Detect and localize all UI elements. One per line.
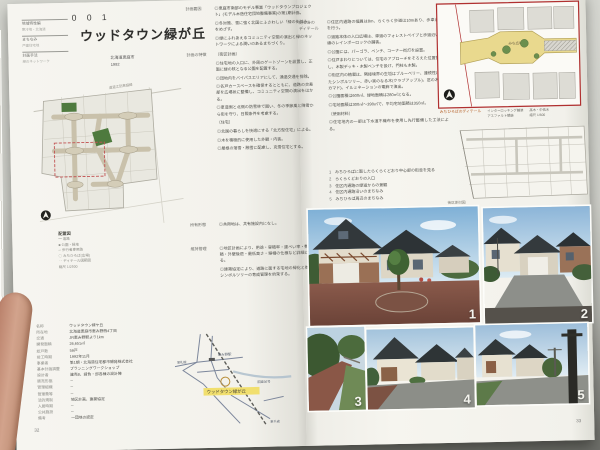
index-tab: 地域特性編 寒冷地・北海道 [22,19,68,32]
legend-paving-2: アスファルト舗装 [487,113,523,119]
bullet-item: ◎宅地面積は300㎡〜390㎡で、平均宅地面積は350㎡。 [329,100,449,109]
open-book-spread: 地域特性編 寒冷地・北海道 まちなみ 戸建住宅地 計画手法 緑のネットワーク 0… [7,0,594,450]
detail-plan-legend-col1: インターロッキング舗装 アスファルト舗装 [487,108,523,119]
section-label-line2: ディテール [299,25,325,32]
detail-plan-drawing: みち広場 [435,0,581,109]
index-tab: 計画手法 緑のネットワーク [22,51,68,64]
route-label: 国道36号 [257,379,270,384]
project-location: 北海道恵庭市 [110,54,134,61]
photo-4-image [366,327,475,409]
block-layout-drawing [442,124,590,201]
site-plan-caption-block: 配置図 ━ 道路■ 公園・緑地─ 歩行者専用路◯ みちひろば(広場)╌ ディテー… [58,229,149,270]
photo-of-book: 地域特性編 寒冷地・北海道 まちなみ 戸建住宅地 計画手法 緑のネットワーク 0… [0,0,600,450]
project-number: 0 0 1 [72,12,111,23]
bullet-item: 〔住宅〕 [217,118,314,126]
index-tab-subheading: 緑のネットワーク [23,58,69,64]
bullet-item: ◎住宅地の入口に、外周のゲートゾーンを設置し、正面に緑の核となる公園を配置する。 [216,58,313,72]
photo-4: 4 [366,327,475,409]
index-tab: まちなみ 戸建住宅地 [22,35,68,48]
bullet-item: ◎共用地は、共有施設内になし。 [219,220,316,228]
park-area [61,103,76,112]
bullet-item: ◎住戸まわりについては、住宅のアプローチをそろえた位置割りとし、木製デッキ・木製… [328,55,448,70]
section-label: 維持管理 [190,246,218,282]
photo-number: 4 [463,391,471,406]
bullet-item: ◎各戸カースペースを確保するとともに、道路の交差部を広場状に整備し、コミュニティ… [216,82,313,103]
photo-1: 1 [308,206,480,326]
index-tab-subheading: 寒冷地・北海道 [22,26,68,32]
section-items: ◎住区内通路の幅員は8m、らくらく歩道は10mあり、歩車道分離を行う。◎道路本体… [327,17,449,135]
to-chitose-label: 至千歳 [270,418,280,423]
detail-plan-figure: みち広場 [435,0,581,109]
index-tab-subheading: 戸建住宅地 [22,42,68,48]
section-label: 計画の特徴 [186,52,215,155]
bullet-item: ◎屋根の落雪・融雪に配慮し、克雪住宅とする。 [217,144,314,152]
photo-5: 5 [475,323,589,405]
photo-3: 3 [307,327,366,411]
section-maintenance: 維持管理 ◎地区計画により、用途・容積率・建ぺい率・敷地面積・外壁後退・最低高さ… [190,244,317,283]
bullet-item: ◎住区内通路の幅員は8m、らくらく歩道は10mあり、歩車道分離を行う。 [327,17,447,32]
bullet-item: ◎北国の暮らしを快適にする「北方型住宅」による。 [217,127,314,135]
block-layout-caption: 街区割付図 [448,201,466,206]
photo-number: 2 [581,306,589,321]
bullet-item: ◎街区内の植栽は、隣接境界の生垣はブルーベリー、連続性に優れたシンボルツリー、赤… [328,70,448,91]
bullet-item: ◎木を積極的に使用した外観・内装。 [217,135,314,143]
section-plan-features: 計画の特徴 〔街区計画〕◎住宅地の入口に、外周のゲートゾーンを設置し、正面に緑の… [186,50,314,156]
spec-label: 備考 [38,415,68,422]
bullet-item: ◎公園には、パーゴラ、ベンチ、コーナー街灯を設置。 [327,47,447,56]
bullet-item: 〔街区計画〕 [215,50,312,58]
bullet-item: ◎緑にふれあえるコミュニティ空間の演出と緑のネットワークによる潤いのあるまちづく… [215,33,312,47]
photo-2: 2 [483,206,592,324]
detail-plan-legend-col2: 高木・中低木 縮尺 1/600 [529,108,549,118]
legend-scale: 縮尺 1/600 [529,113,549,118]
bullet-item: ◎住宅地内の一部は下水道不織布を使用し先行整備した工法による。 [329,117,449,132]
photo-caption-number: 5 [329,197,333,204]
location-map-drawing: 恵み野駅 至札幌 至千歳 国道36号 ウッドタウン緑が丘 [172,330,294,428]
photo-5-image [475,323,589,405]
bullet-item: ◎団地内をバイパスエリアにして、通過交通を排除。 [216,73,313,81]
bullet-item: ◎建築協定により、道路に面する宅地の緑化と街路のシンボルツリーの育成管理を約束す… [220,265,317,279]
to-sapporo-label: 至札幌 [177,359,187,364]
photo-caption-list: 1 みちひろばに面したらくらくどおり中心部の街並を見る 2 らくらくどおりの入口… [329,167,452,204]
section-label: 所有形態 [190,222,217,231]
section-items: ◎地区計画により、用途・容積率・建ぺい率・敷地面積・外壁後退・最低高さ・塀柵の仕… [219,244,317,282]
photo-1-image [308,206,480,326]
bullet-item: ◎道路本体の入口広場は、車道のフォレストペイブと歩道沿い一直線のレインボーロック… [327,32,447,47]
photo-caption-text: みちひろば周辺のまちなみ [335,195,383,203]
site-plan-drawing: 道道江別恵庭線 [31,78,186,227]
road-name-label: 道道江別恵庭線 [109,82,134,90]
section-items: ◎恵庭市南部のモデル事業「ウッドタウンプロジェクト」(モデル木造住宅団地整備事業… [214,4,312,51]
bullet-item: ◎冬対策、雪に強く北国にふさわしい「緑の街並み」をめざす。 [215,19,312,33]
spec-table: 名称 ウッドタウン緑ケ丘 所在地 北海道恵庭市恵み野西4丁目 交通 JR恵み野駅… [36,320,188,421]
detail-plan-caption: みちひろばのディテール [440,109,482,120]
photo-number: 3 [354,394,362,409]
bullet-item: ◎恵庭市南部のモデル事業「ウッドタウンプロジェクト」(モデル木造住宅団地整備事業… [214,4,311,18]
photo-number: 5 [577,387,585,402]
section-label: 計画要因 [185,6,213,51]
location-map-figure: 恵み野駅 至札幌 至千歳 国道36号 ウッドタウン緑が丘 [172,330,294,428]
project-year: 1992 [111,62,120,67]
north-arrow-icon [41,210,51,220]
photo-number: 1 [469,306,477,321]
site-plan-figure: 道道江別恵庭線 [31,78,186,227]
page-number-right: 33 [576,418,581,423]
bullet-item: ◎車道側と北側の防雪林で囲い、冬の季節風と降雪から街を守り、日照条件を考慮する。 [217,103,314,117]
index-tabs: 地域特性編 寒冷地・北海道 まちなみ 戸建住宅地 計画手法 緑のネットワーク [22,15,69,64]
page-number-left: 32 [34,428,39,433]
bullet-item: 〔使用材料〕 [329,109,449,118]
section-label-wrap: 街なみの ディテール [299,19,327,135]
bullet-item: ◎公園面積は600㎡、緑地面積は280㎡となる。 [328,91,448,100]
station-label: 恵み野駅 [218,351,232,356]
block-layout-figure [442,124,590,201]
site-plan-legend: ━ 道路■ 公園・緑地─ 歩行者専用路◯ みちひろば(広場)╌ ディテール図範囲… [58,235,149,270]
photo-2-image [483,206,592,324]
section-planning-factors: 計画要因 ◎恵庭市南部のモデル事業「ウッドタウンプロジェクト」(モデル木造住宅団… [185,4,312,51]
section-streetscape-detail: 街なみの ディテール ◎住区内通路の幅員は8m、らくらく歩道は10mあり、歩車道… [299,17,449,135]
bullet-item: ◎地区計画により、用途・容積率・建ぺい率・敷地面積・外壁後退・最低高さ・塀柵の仕… [219,244,316,265]
